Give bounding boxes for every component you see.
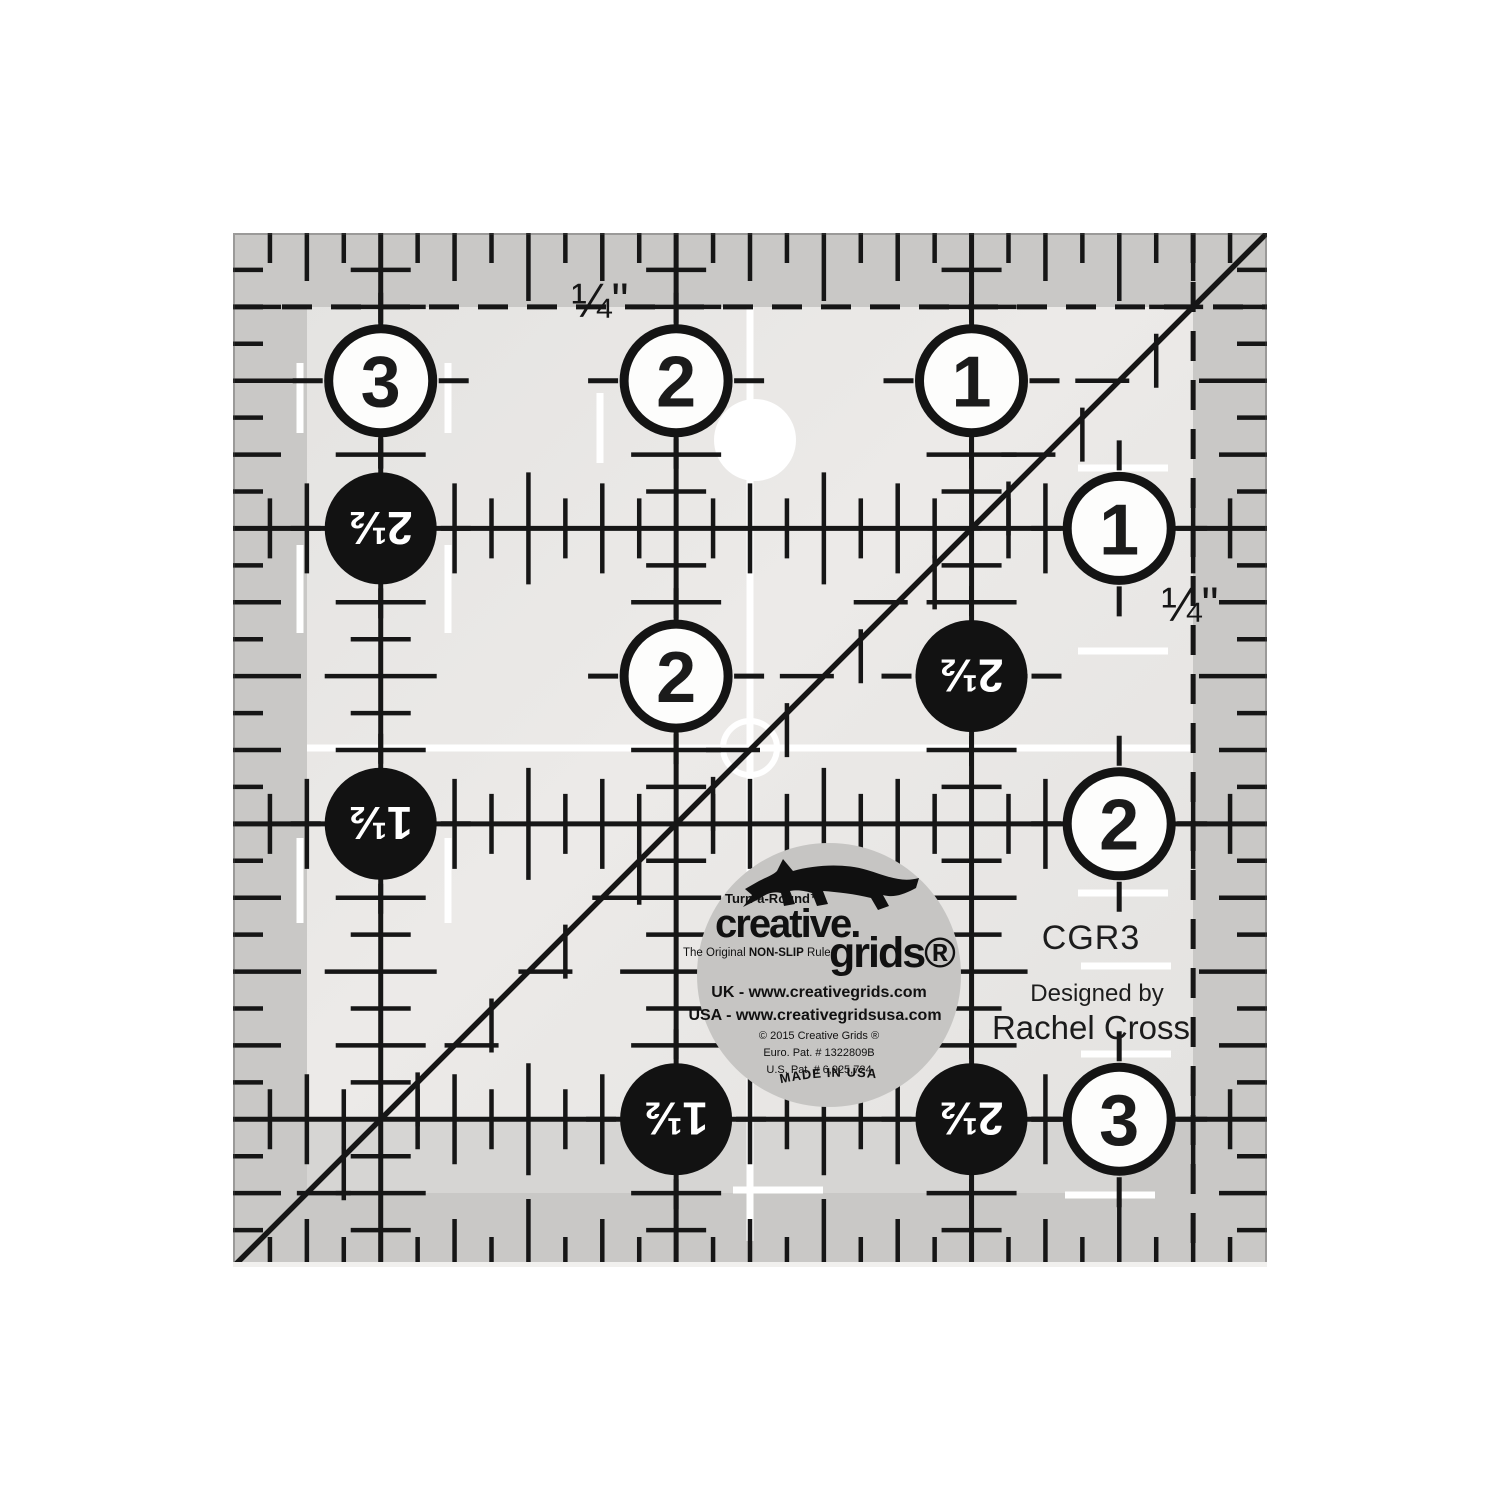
product-code: CGR3	[1042, 919, 1140, 957]
logo-brand-grids: grids®	[829, 929, 956, 977]
circle-number-inverted: 2½	[940, 1093, 1004, 1145]
quarter-inch-label-right: ¼"	[1161, 579, 1218, 632]
circle-number: 2	[1099, 786, 1139, 866]
quilting-ruler: 3 2 1 1	[233, 233, 1267, 1267]
hanging-hole	[714, 399, 796, 481]
ruler-graphic: 3 2 1 1	[233, 233, 1267, 1267]
circle-number-inverted: 2½	[349, 502, 413, 554]
designed-by-label: Designed by	[1030, 980, 1163, 1007]
bottom-bevel	[233, 1262, 1267, 1267]
circle-number: 3	[1099, 1081, 1139, 1161]
logo-tagline: The Original NON-SLIP Ruler	[683, 947, 835, 959]
logo-url-uk: UK - www.creativegrids.com	[711, 984, 926, 1001]
circle-number-inverted: 1½	[644, 1093, 708, 1145]
quarter-inch-label-top: ¼"	[571, 275, 628, 328]
circle-number-inverted: 2½	[940, 650, 1004, 702]
logo-copyright: © 2015 Creative Grids ®	[759, 1030, 879, 1042]
circle-number: 2	[656, 343, 696, 423]
logo-patent-euro: Euro. Pat. # 1322809B	[763, 1047, 874, 1059]
designer-name: Rachel Cross	[992, 1009, 1190, 1046]
logo-url-usa: USA - www.creativegridsusa.com	[688, 1007, 941, 1024]
circle-number-inverted: 1½	[349, 797, 413, 849]
circle-number: 3	[361, 343, 401, 423]
product-photo: 3 2 1 1	[0, 0, 1500, 1500]
circle-number: 1	[1099, 490, 1139, 570]
circle-number: 2	[656, 638, 696, 718]
circle-number: 1	[951, 343, 991, 423]
